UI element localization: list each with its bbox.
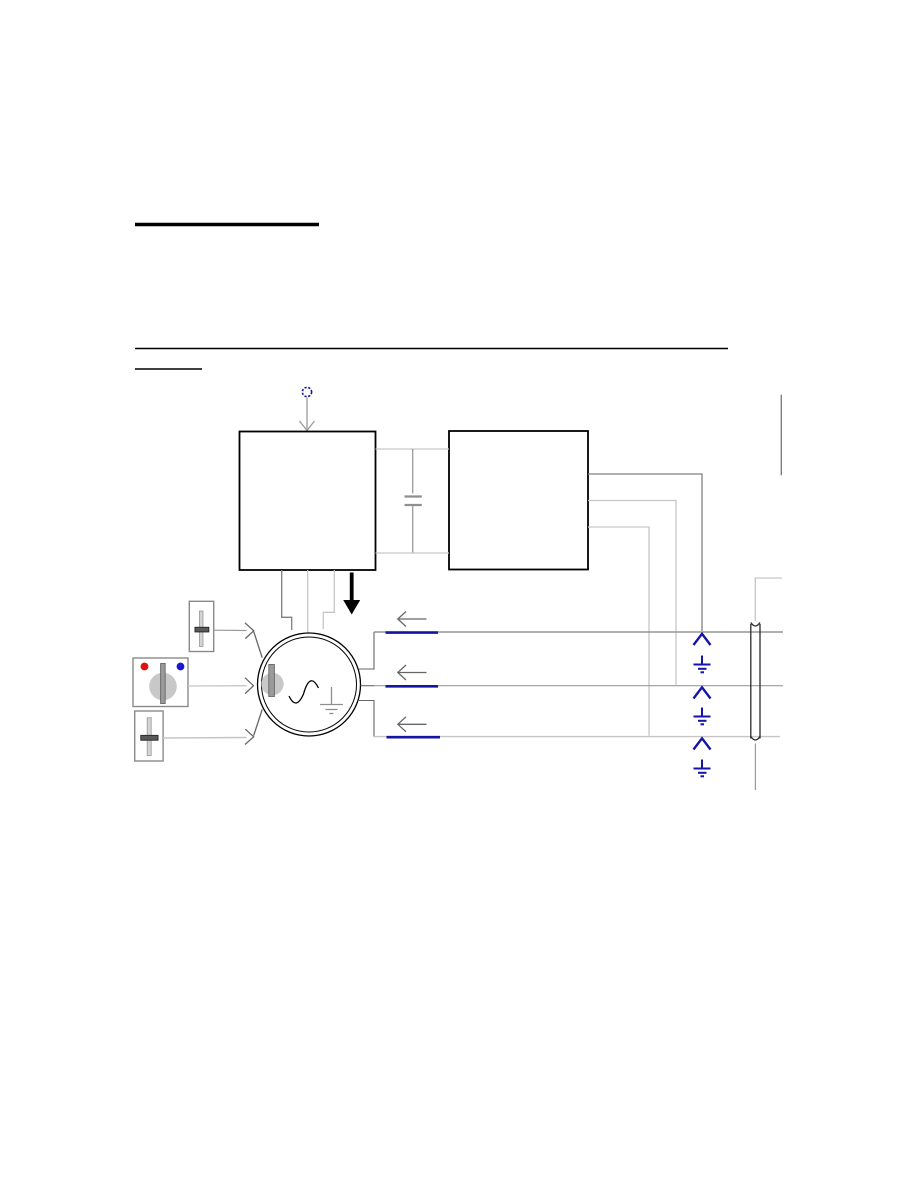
blocks: [240, 431, 589, 570]
red-indicator-dot: [141, 663, 149, 671]
navy-up-arrows: [694, 634, 711, 750]
block-a-motor-leads: [282, 570, 335, 633]
navy-ground-symbols: [694, 656, 711, 777]
knob-pointer: [161, 664, 166, 704]
motor-lead-1: [282, 570, 292, 630]
blue-indicator-dot: [177, 663, 185, 671]
block-a: [240, 432, 376, 571]
capacitor-link: [376, 449, 450, 553]
converge-line: [254, 632, 263, 658]
up-arrow-icon: [694, 738, 711, 749]
down-arrow-icon: [343, 573, 360, 615]
input-arrow: [300, 398, 315, 431]
heading-rules: [135, 225, 728, 370]
capacitor-icon: [405, 497, 422, 506]
cable-shield-icon: [751, 623, 760, 741]
motor-ground-icon: [320, 687, 343, 714]
wire-highlights: [386, 633, 441, 738]
output-drop-2: [588, 501, 676, 685]
slider-handle: [195, 627, 209, 632]
ground-icon: [694, 708, 711, 725]
left-arrow-icon: [398, 665, 427, 680]
output-drop-1: [588, 474, 702, 631]
rotor-knob-icon: [261, 665, 283, 697]
ground-icon: [694, 656, 711, 673]
up-arrow-icon: [694, 687, 711, 698]
slider-control-bottom: [135, 711, 163, 761]
slider-top-arrowhead-icon: [245, 623, 262, 658]
left-arrow-icon: [398, 612, 427, 627]
slider-handle: [141, 735, 158, 740]
block-b-output-wires: [588, 474, 702, 736]
slider-bottom-arrowhead-icon: [245, 710, 262, 745]
document-page: [0, 0, 918, 1188]
slider-bottom-lead: [163, 738, 246, 739]
cable-feed-line: [755, 578, 782, 621]
current-direction-arrows: [398, 612, 427, 732]
sine-wave-icon: [289, 681, 319, 703]
ground-icon: [694, 760, 711, 777]
motor-lead-3: [323, 570, 334, 629]
rotary-switch-control: [133, 658, 188, 707]
slider-control-top: [189, 601, 213, 651]
left-arrow-icon: [398, 717, 427, 732]
up-arrow-icon: [694, 634, 711, 645]
schematic-diagram: [0, 0, 918, 1188]
input-terminal-icon: [302, 387, 311, 396]
converge-line: [254, 710, 263, 736]
block-b: [449, 431, 588, 570]
